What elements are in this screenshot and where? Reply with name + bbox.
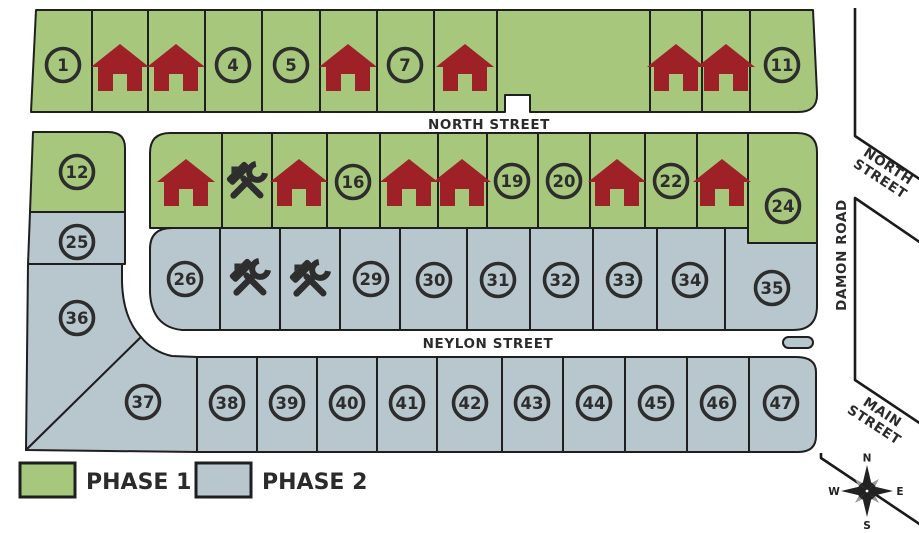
svg-text:26: 26 [174,270,197,289]
compass-e: E [896,486,903,498]
svg-text:24: 24 [772,197,795,216]
svg-text:16: 16 [342,173,365,192]
svg-text:20: 20 [553,172,576,191]
compass-s: S [863,520,871,532]
svg-text:4: 4 [227,56,238,75]
svg-text:25: 25 [66,233,89,252]
road-outline-damon-main [855,198,919,424]
svg-text:19: 19 [501,172,524,191]
svg-text:35: 35 [761,279,784,298]
svg-text:46: 46 [707,394,730,413]
svg-text:33: 33 [613,271,636,290]
phase1-label: PHASE 1 [86,470,191,495]
svg-text:34: 34 [679,271,702,290]
main-street-label: MAIN STREET [844,389,912,448]
compass-w: W [828,486,840,498]
svg-text:44: 44 [583,394,606,413]
svg-text:32: 32 [550,271,573,290]
svg-text:11: 11 [771,56,794,75]
svg-text:36: 36 [66,309,89,328]
svg-text:12: 12 [66,163,89,182]
damon-road-label: DAMON ROAD [834,199,850,311]
phase2-swatch [196,463,251,497]
svg-text:39: 39 [276,394,299,413]
svg-text:42: 42 [459,394,482,413]
svg-text:38: 38 [216,394,239,413]
north-street-label: NORTH STREET [428,117,550,133]
svg-text:43: 43 [521,394,544,413]
phase2-label: PHASE 2 [262,470,367,495]
legend: PHASE 1 PHASE 2 [20,463,367,497]
svg-text:29: 29 [360,270,383,289]
svg-text:40: 40 [336,394,359,413]
svg-text:7: 7 [399,56,410,75]
compass-rose: N S W E [828,453,903,533]
street-island [783,337,813,348]
svg-text:5: 5 [285,56,296,75]
svg-text:37: 37 [132,393,155,412]
svg-text:45: 45 [645,394,668,413]
neylon-street-label: NEYLON STREET [423,336,554,352]
compass-n: N [863,453,872,465]
svg-text:41: 41 [396,394,419,413]
svg-text:31: 31 [487,271,510,290]
phase1-swatch [20,463,75,497]
open-space-lot [497,10,650,112]
north-street-right-label: NORTH STREET [850,143,918,202]
svg-text:47: 47 [770,394,793,413]
site-plan: 1457111216192022242526293031323334353637… [0,0,919,533]
svg-text:1: 1 [57,56,68,75]
site-plan-svg: 1457111216192022242526293031323334353637… [0,0,919,533]
svg-text:22: 22 [660,172,683,191]
svg-text:30: 30 [423,271,446,290]
